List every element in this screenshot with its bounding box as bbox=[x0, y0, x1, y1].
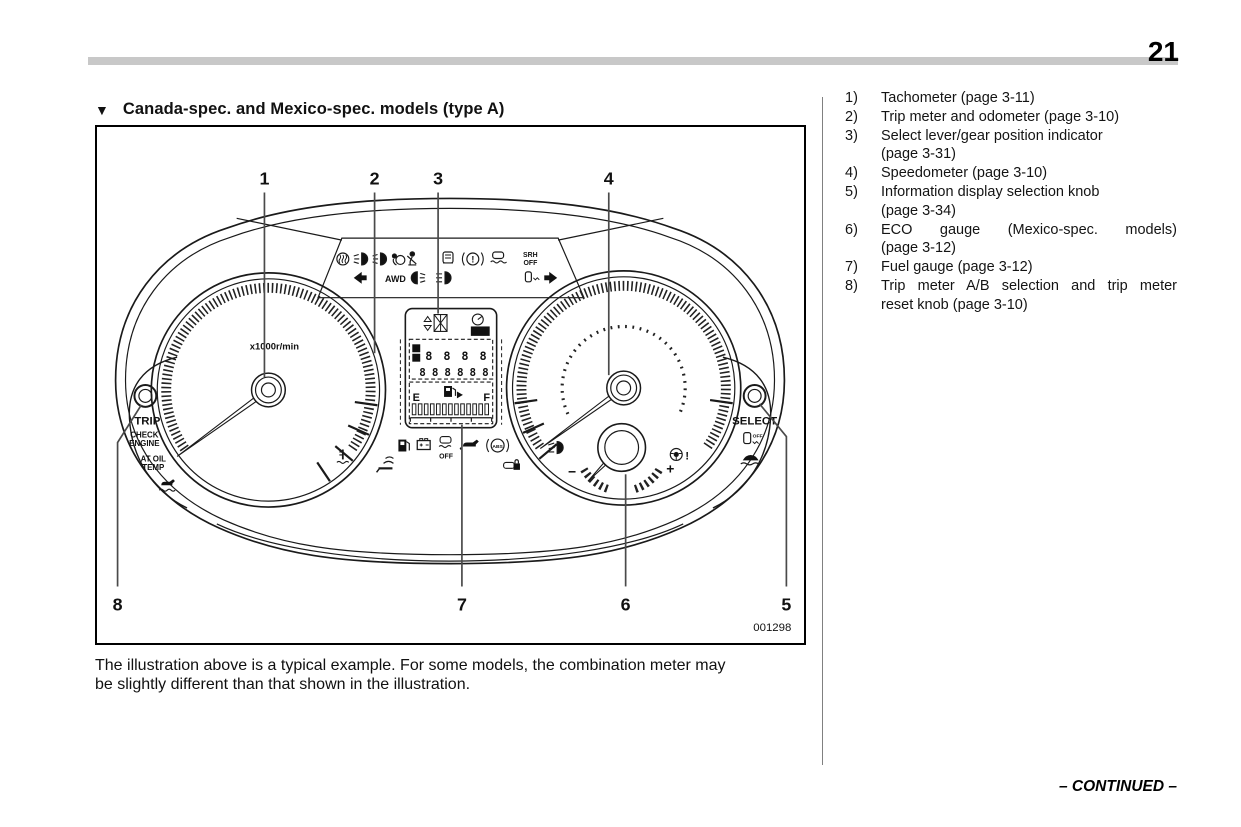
vdc-off-icon: OFF bbox=[439, 437, 453, 461]
svg-text:!: ! bbox=[685, 450, 689, 462]
legend-item: 2)Trip meter and odometer (page 3-10) bbox=[845, 108, 1177, 127]
gear-position-icon bbox=[424, 315, 447, 332]
seat-icon bbox=[443, 252, 453, 263]
tachometer: x1000r/min bbox=[151, 273, 385, 507]
legend-item-number: 1) bbox=[845, 89, 881, 108]
airbag-icon bbox=[392, 254, 404, 265]
fog-light-icon bbox=[354, 253, 368, 265]
legend-item: 1)Tachometer (page 3-11) bbox=[845, 89, 1177, 108]
legend-item-number: 2) bbox=[845, 108, 881, 127]
legend-item-text: Trip meter A/B selection and trip meterr… bbox=[881, 277, 1177, 315]
caption-line: be slightly different than that shown in… bbox=[95, 675, 820, 694]
legend-item-number: 5) bbox=[845, 183, 881, 221]
defrost-icon bbox=[337, 253, 349, 265]
callout-5: 5 bbox=[781, 594, 791, 614]
trip-label: TRIP bbox=[134, 416, 160, 428]
legend-list: 1)Tachometer (page 3-11)2)Trip meter and… bbox=[845, 89, 1177, 315]
trailer-sway-icon bbox=[741, 455, 759, 465]
eco-minus-label: − bbox=[568, 463, 576, 479]
svg-text:OFF: OFF bbox=[523, 260, 537, 267]
speedometer-hub bbox=[607, 371, 641, 405]
tachometer-hub bbox=[252, 373, 286, 407]
cluster-drawing: ! SRH OFF AWD bbox=[97, 127, 804, 643]
section-marker-icon: ▼ bbox=[95, 103, 109, 117]
svg-text:SRH: SRH bbox=[523, 252, 538, 259]
svg-text:!: ! bbox=[471, 254, 474, 264]
callout-2: 2 bbox=[370, 169, 380, 189]
legend-item-number: 8) bbox=[845, 277, 881, 315]
abs-icon: ABS bbox=[487, 439, 509, 452]
vdc-icon bbox=[491, 252, 507, 263]
manual-page: { "page": { "number": "21", "continued":… bbox=[0, 0, 1241, 827]
callout-8: 8 bbox=[113, 594, 123, 614]
section-title: Canada-spec. and Mexico-spec. models (ty… bbox=[123, 100, 505, 119]
callout-1: 1 bbox=[259, 169, 269, 189]
figure-code: 001298 bbox=[753, 622, 791, 634]
keyless-icon bbox=[525, 272, 539, 282]
key-off-label: OFF bbox=[753, 434, 763, 440]
legend-item-text: Tachometer (page 3-11) bbox=[881, 89, 1177, 108]
eco-gauge: − + bbox=[568, 424, 674, 489]
header-rule bbox=[88, 57, 1178, 65]
legend-item-text: Speedometer (page 3-10) bbox=[881, 164, 1177, 183]
callout-numbers: 1 2 3 4 8 7 6 5 bbox=[113, 169, 792, 615]
callout-3: 3 bbox=[433, 169, 443, 189]
legend-item: 3)Select lever/gear position indicator(p… bbox=[845, 127, 1177, 165]
lower-warning-icons: OFF ABS bbox=[377, 437, 520, 473]
information-display: SET A B 8888 888888 E bbox=[400, 309, 501, 428]
column-divider bbox=[822, 97, 823, 765]
page-number: 21 bbox=[1148, 38, 1179, 66]
trip-b-label: B bbox=[414, 355, 419, 362]
callout-7: 7 bbox=[457, 594, 467, 614]
srh-off-indicator: SRH OFF bbox=[523, 252, 538, 267]
indicator-panel: ! SRH OFF AWD bbox=[318, 238, 584, 298]
trip-odometer-display: A B 8888 888888 bbox=[409, 339, 492, 379]
battery-icon bbox=[417, 439, 430, 450]
legend-item-text: Select lever/gear position indicator(pag… bbox=[881, 127, 1177, 165]
cluster-housing-outline bbox=[116, 198, 785, 563]
legend-item: 5)Information display selection knob(pag… bbox=[845, 183, 1177, 221]
legend-item: 8)Trip meter A/B selection and trip mete… bbox=[845, 277, 1177, 315]
legend-item-number: 3) bbox=[845, 127, 881, 165]
section-heading: ▼ Canada-spec. and Mexico-spec. models (… bbox=[95, 100, 505, 119]
brake-warning-icon: ! bbox=[462, 253, 483, 266]
fuel-pump-warning-icon bbox=[398, 440, 409, 452]
vdc-off-label: OFF bbox=[439, 453, 453, 460]
callout-4: 4 bbox=[604, 169, 614, 189]
combination-meter-figure: ! SRH OFF AWD bbox=[95, 125, 806, 645]
fuel-pump-icon bbox=[444, 386, 463, 398]
engine-label: ENGINE bbox=[129, 439, 159, 448]
fuel-empty-label: E bbox=[413, 392, 420, 404]
caption-line: The illustration above is a typical exam… bbox=[95, 656, 820, 675]
legend-item-text: Trip meter and odometer (page 3-10) bbox=[881, 108, 1177, 127]
legend-item-text: ECO gauge (Mexico-spec. models)(page 3-1… bbox=[881, 221, 1177, 259]
select-knob-panel: SELECT OFF bbox=[713, 357, 777, 508]
trip-digits: 8888 bbox=[425, 349, 487, 363]
seatbelt-icon bbox=[407, 252, 416, 265]
temp-label: TEMP bbox=[142, 463, 165, 472]
legend-item: 7)Fuel gauge (page 3-12) bbox=[845, 258, 1177, 277]
legend-item: 4)Speedometer (page 3-10) bbox=[845, 164, 1177, 183]
rear-fog-icon bbox=[411, 272, 425, 284]
tach-unit-label: x1000r/min bbox=[250, 340, 299, 351]
security-icon bbox=[504, 460, 520, 470]
trip-a-label: A bbox=[414, 346, 419, 353]
headlight-leveling-icon bbox=[548, 442, 563, 454]
legend-item-text: Information display selection knob(page … bbox=[881, 183, 1177, 221]
turn-right-icon bbox=[544, 272, 557, 284]
legend-item-text: Fuel gauge (page 3-12) bbox=[881, 258, 1177, 277]
continued-label: – CONTINUED – bbox=[1059, 778, 1177, 796]
select-knob bbox=[744, 385, 766, 407]
abs-label: ABS bbox=[492, 444, 503, 450]
keyless-signal-icon bbox=[377, 457, 394, 472]
legend-item-number: 4) bbox=[845, 164, 881, 183]
cruise-set-icon: SET bbox=[471, 314, 490, 336]
awd-label: AWD bbox=[385, 274, 406, 284]
legend-item-number: 7) bbox=[845, 258, 881, 277]
trip-reset-knob bbox=[134, 385, 156, 407]
callout-6: 6 bbox=[621, 594, 631, 614]
turn-left-icon bbox=[354, 272, 367, 284]
legend-item: 6)ECO gauge (Mexico-spec. models)(page 3… bbox=[845, 221, 1177, 259]
key-off-icon: OFF bbox=[744, 433, 763, 444]
eco-plus-label: + bbox=[666, 460, 674, 476]
figure-caption: The illustration above is a typical exam… bbox=[95, 656, 820, 694]
fuel-full-label: F bbox=[483, 392, 490, 404]
speedometer: ! − + bbox=[507, 271, 741, 505]
legend-item-number: 6) bbox=[845, 221, 881, 259]
set-label: SET bbox=[473, 327, 488, 336]
fuel-gauge-display: E F bbox=[409, 382, 492, 424]
fuel-segments bbox=[412, 404, 488, 415]
odo-digits: 888888 bbox=[419, 366, 488, 379]
